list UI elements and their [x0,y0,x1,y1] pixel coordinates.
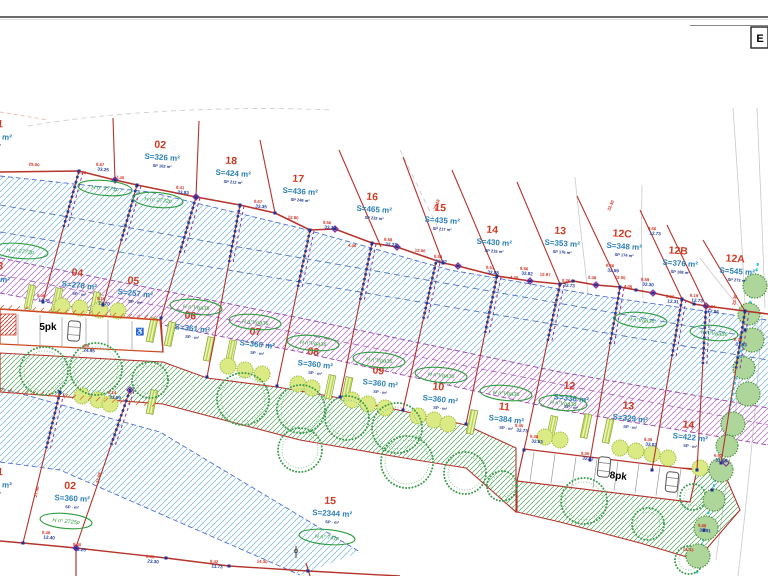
dimension-length-label: 32.63 [531,439,543,445]
plot-secondary-area-label: SP · m² [433,405,448,411]
parcel-reference-label: H n°Vga36 [493,390,521,398]
survey-node-blue [651,469,654,472]
plot-secondary-area-label: SP · m² [623,424,638,430]
survey-node-blue [523,449,526,452]
survey-node-blue [693,303,696,306]
survey-node-blue [129,389,132,392]
bush-icon [360,396,376,412]
plot-number-label: 12A [725,252,745,265]
plot-secondary-area-label: SP 162 m² [152,163,172,169]
plot-area-label: S=424 m² [215,168,251,179]
edge-tree-icon [703,489,725,511]
car-icon [597,456,611,477]
dimension-length-label: 32.59 [607,268,619,274]
upper-plot-boundary [196,121,199,197]
plot-number-label: 14 [682,418,695,431]
plot-area-label: S=430 m² [476,237,512,248]
plot-area-label: S=353 m² [544,238,580,249]
survey-node-blue [22,542,25,545]
bush-icon [644,446,660,462]
plot-secondary-area-label: SP 217 m² [432,226,452,232]
plot-secondary-area-label: SP 212 m² [223,179,243,185]
dimension-length-label: 32.07 [582,456,594,462]
plot-area-label: S=360 m² [297,358,333,371]
dimension-offset-label: 7.40 [116,175,125,181]
dimension-offset-label: 4.05 [624,284,633,290]
bush-icon [54,298,70,314]
dimension-length-label: 13.70 [98,301,110,307]
survey-node-blue [572,280,575,283]
dimension-length-label: 32.30 [642,282,654,288]
sheet-frame: E [0,17,768,48]
dimension-length-label: 33.25 [74,547,86,553]
plot-secondary-area-label: SP · m² [683,443,698,449]
car-body [67,321,80,342]
bush-icon [426,412,442,428]
bush-icon [220,358,236,374]
survey-node-blue [402,409,405,412]
dimension-length-label: 32.23 [385,242,397,248]
survey-node-blue [371,242,374,245]
dimension-length-label: 23.30 [147,559,159,565]
plot-number-label: 13 [622,399,635,412]
survey-node-blue [239,204,242,207]
plot-secondary-area-label: SP 248 m² [290,197,310,203]
bush-icon [237,362,253,378]
dimension-length-label: 11.73 [211,564,223,570]
plot-secondary-area-label: SP · m² [325,519,340,525]
plot-secondary-area-label: SP · m² [185,334,200,340]
plot-area-label: S=348 m² [606,241,642,252]
dimension-offset-label: 2.48 [588,275,597,281]
survey-node-blue [274,212,277,215]
dimension-length-label: 31.63 [715,458,727,464]
boundary-length-label: 32.30 [606,199,615,211]
dimension-length-label: 24.95 [83,348,95,354]
dimension-offset-label: 4.25 [510,275,519,281]
dimension-offset-label: 12.06 [415,248,427,254]
dimension-length-label: 31.63 [735,342,747,348]
bush-icon [290,376,306,392]
plot-secondary-area-label: SP 273 m² [727,277,747,283]
car-body [597,456,611,477]
dimension-length-label: 12.31 [667,299,679,305]
plot-area-label: S=331 m² [0,131,12,142]
red-hatched-reserve-box [0,314,16,335]
plot-number-label: 05 [127,274,140,287]
plot-number-label: 02 [154,139,167,152]
dimension-offset-label: 13.43 [683,547,695,553]
bush-icon [628,443,644,459]
bush-icon [660,450,676,466]
plot-number-label: 01 [0,118,4,131]
dimension-length-label: 32.88 [487,270,499,276]
plot-number-label: 12C [612,227,632,240]
plot-secondary-area-label: SP · m² [373,389,388,395]
edge-tree-icon [721,412,745,436]
dimension-offset-label: 7.26 [78,170,87,176]
plot-area-label: S=435 m² [424,215,460,226]
plot-number-label: 15 [324,495,336,508]
bush-icon [254,366,270,382]
plot-number-label: 17 [292,173,305,186]
survey-node-blue [711,489,714,492]
survey-node-blue [160,317,163,320]
dimension-length-label: 33.32 [324,225,336,231]
bush-icon [612,440,628,456]
plot-secondary-area-label: SP · m² [250,350,265,356]
dimension-length-label: 33.09 [109,395,121,401]
car-body [665,471,679,492]
plot-number-label: 18 [225,155,238,168]
survey-node-blue [744,329,747,332]
plot-secondary-area-label: SP 176 m² [552,249,572,255]
survey-node-blue [228,565,231,568]
plot-area-label: S=360 m² [54,493,90,504]
plot-area-label: S=360 m² [422,393,458,406]
dimension-offset-label: 14.30 [257,559,269,565]
dimension-length-label: 33.83 [177,190,189,196]
parking-count-label-right: 8pk [609,470,628,483]
plot-number-label: 13 [554,225,567,238]
planting-strip [324,375,336,400]
survey-node-blue [309,229,312,232]
title-block-label: E [756,33,763,45]
dimension-offset-label: 29.00 [29,162,41,168]
survey-node-blue [595,284,598,287]
survey-node-blue [195,196,198,199]
dimension-length-label: 33.02 [645,442,657,448]
bush-icon [410,408,426,424]
dimension-length-label: 13.75 [38,298,50,304]
car-icon [67,321,80,342]
plot-number-label: 14 [486,224,499,237]
dimension-length-label: 33.35 [255,204,267,210]
bush-icon [74,388,90,404]
dimension-length-label: 32.73 [563,283,575,289]
survey-node-blue [681,298,684,301]
plot-secondary-area-label: SP 188 m² [670,269,690,275]
plot-number-label: 06 [184,309,197,322]
dimension-length-label: 17.86 [707,309,719,315]
survey-node-blue [136,184,139,187]
dimension-length-label: 32.73 [516,428,528,434]
survey-node-blue [635,289,638,292]
survey-node-blue [465,423,468,426]
bush-icon [440,416,456,432]
plot-number-label: 12B [668,244,688,257]
survey-node-blue [619,286,622,289]
survey-node-blue [696,469,699,472]
parking-count-label-left: 5pk [39,322,57,333]
plot-number-label: 02 [64,480,76,493]
survey-node-blue [559,283,562,286]
boundary-length-label: 27.50 [33,485,40,497]
survey-node-blue [457,265,460,268]
plot-area-label: S=545 m² [719,266,755,277]
plot-number-label: 07 [249,325,262,338]
bush-icon [692,460,708,476]
plot-secondary-area-label: SP · m² [65,504,80,510]
plot-number-label: 09 [372,364,385,377]
dimension-length-label: 12.73 [649,231,661,237]
survey-node-blue [276,385,279,388]
dimension-length-label: 31.91 [699,528,711,534]
dimension-offset-label: 12.05 [615,275,627,281]
plot-area-label: S=360 m² [362,377,398,390]
survey-node-blue [307,570,310,573]
upper-plot-boundary [113,118,115,180]
survey-node-blue [165,557,168,560]
plot-number-label: 01 [0,466,3,479]
handicap-icon: ♿ [136,327,145,336]
planting-strip [580,414,592,439]
plot-area-label: S=2344 m² [312,508,353,519]
bush-icon [552,432,568,448]
parcel-reference-label: H n° 2725p [52,518,80,526]
survey-node-blue [59,391,62,394]
dimension-offset-label: 12.80 [288,215,300,221]
plot-secondary-area-label: SP · m² [499,425,514,431]
plot-secondary-area-label: SP 174 m² [614,252,634,258]
survey-node-blue [744,310,747,313]
edge-tree-icon [736,382,760,406]
dimension-length-label: 12.73 [691,298,703,304]
planting-strip [602,419,614,444]
survey-node-blue [652,292,655,295]
dimension-offset-label: 4.40 [348,243,357,249]
plot-number-label: 04 [71,266,84,279]
plot-area-label: S=436 m² [282,186,318,197]
survey-node-blue [529,280,532,283]
plot-area-label: S=331 m² [0,479,12,490]
dimension-length-label: 32.82 [521,271,533,277]
plot-area-label: S=326 m² [144,152,180,163]
dimension-offset-label: 12.97 [540,272,552,278]
plot-number-label: 16 [366,191,379,204]
plot-area-label: S=465 m² [356,204,392,215]
plot-secondary-area-label: SP · m² [0,490,2,496]
survey-node-blue [339,396,342,399]
plot-secondary-area-label: SP 232 m² [364,215,384,221]
survey-node-blue [206,376,209,379]
site-plan-canvas: E 5pk ♿ 8pk [0,0,768,576]
plot-number-label: 12 [563,379,576,392]
plot-secondary-area-label: SP · m² [0,142,2,148]
car-icon [665,471,679,492]
planting-strip [203,337,215,362]
dimension-length-label: 12.40 [43,535,55,541]
plot-number-label: 11 [498,400,510,413]
plot-secondary-area-label: SP · m² [308,370,323,376]
dimension-length-label: 32.02 [435,259,447,265]
dimension-length-label: 33.25 [97,167,109,173]
